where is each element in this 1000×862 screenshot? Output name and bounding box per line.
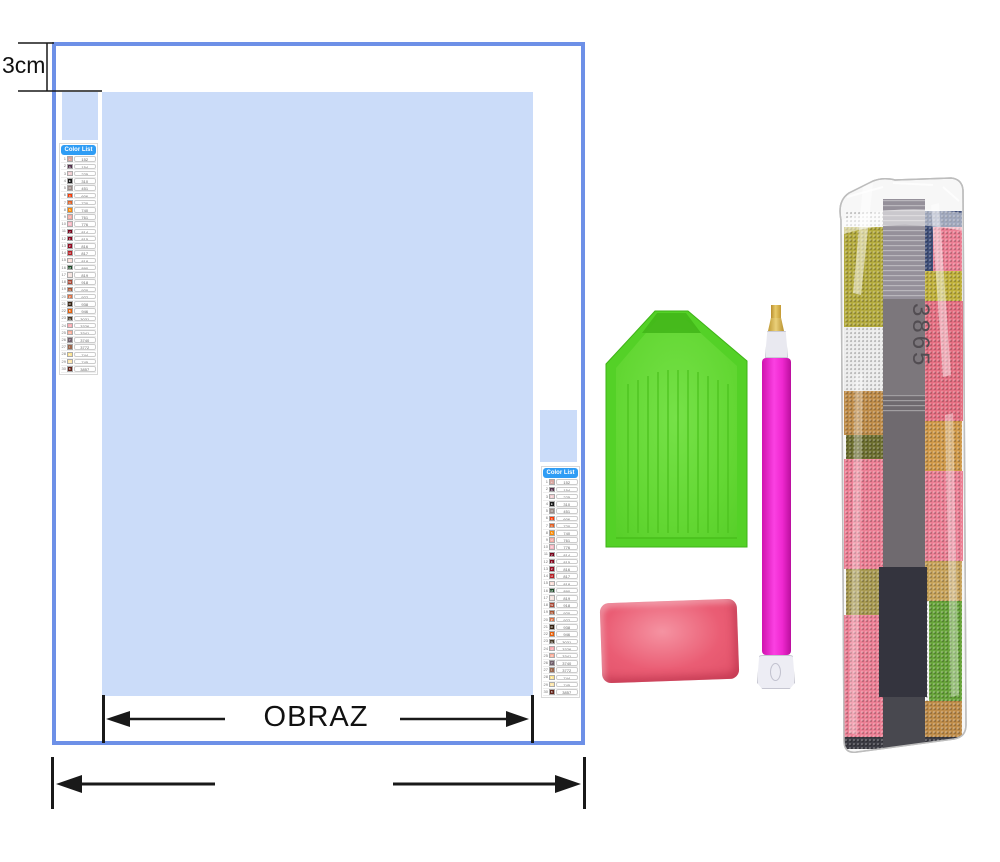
color-swatch: G	[67, 316, 73, 322]
color-list-row: 19N920	[61, 286, 96, 293]
color-swatch: P	[549, 617, 555, 623]
color-list-row: 13Z816	[543, 566, 578, 573]
color-swatch: F	[549, 559, 555, 565]
color-swatch: Y	[67, 337, 73, 343]
color-swatch: F	[67, 236, 73, 242]
color-swatch: 8	[67, 366, 73, 372]
color-swatch: V	[549, 552, 555, 558]
color-list-row: 22B946	[543, 631, 578, 638]
color-swatch: T	[67, 171, 73, 177]
color-swatch: 5	[67, 352, 73, 358]
color-swatch: L	[67, 272, 73, 278]
color-list-strip-left: Color List 1+1522A1543T2254E3105O4516X60…	[59, 143, 98, 375]
picture-width-label: OBRAZ	[255, 701, 377, 734]
color-list-row: 16M890	[61, 265, 96, 272]
color-list-row: 23G3031	[543, 638, 578, 645]
color-swatch: Z	[67, 243, 73, 249]
color-list-row: 3T225	[543, 493, 578, 500]
color-swatch: H	[67, 250, 73, 256]
color-swatch: X	[549, 516, 555, 522]
color-swatch: E	[67, 178, 73, 184]
color-list-row: 7C720	[61, 199, 96, 206]
color-swatch: +	[67, 156, 73, 162]
color-list-row: 5O451	[543, 508, 578, 515]
color-list-row: 23G3031	[61, 315, 96, 322]
color-list-row: 25Q3341	[543, 653, 578, 660]
color-swatch: D	[549, 544, 555, 550]
color-list-row: 9U761	[61, 214, 96, 221]
diamond-tray	[604, 306, 750, 552]
color-list-row: 10D776	[61, 221, 96, 228]
color-list-row: 15K818	[543, 580, 578, 587]
color-swatch: E	[549, 501, 555, 507]
color-list-row: 6X606	[543, 515, 578, 522]
arrow-right-icon	[555, 775, 581, 793]
color-list-row: 13Z816	[61, 243, 96, 250]
color-swatch: T	[549, 494, 555, 500]
color-list-row: 19N920	[543, 609, 578, 616]
color-swatch: B	[549, 631, 555, 637]
color-swatch: 3	[67, 359, 73, 365]
color-swatch: U	[549, 537, 555, 543]
color-list-row: 12F815	[61, 236, 96, 243]
color-list-row: 12F815	[543, 559, 578, 566]
color-list-row: 1+152	[543, 479, 578, 486]
color-swatch: 8	[549, 689, 555, 695]
color-swatch: H	[549, 573, 555, 579]
color-list-row: 8S740	[543, 530, 578, 537]
color-swatch: C	[549, 523, 555, 529]
pen-cap-loop	[770, 663, 781, 681]
color-list-row: 21R938	[61, 301, 96, 308]
color-swatch: R	[549, 624, 555, 630]
bead-bag: 3865	[833, 175, 973, 760]
color-list-rows: 1+1522A1543T2254E3105O4516X6067C7208S740…	[543, 479, 578, 696]
color-swatch: M	[549, 588, 555, 594]
color-swatch: K	[549, 581, 555, 587]
bag-dark-pack	[879, 567, 927, 697]
color-swatch: C	[67, 200, 73, 206]
color-swatch: N	[549, 610, 555, 616]
color-swatch: S	[549, 530, 555, 536]
color-list-row: 10D776	[543, 544, 578, 551]
color-swatch: M	[67, 265, 73, 271]
color-list-row: 293745	[543, 682, 578, 689]
color-swatch: Y	[549, 660, 555, 666]
color-list-rows: 1+1522A1543T2254E3105O4516X6067C7208S740…	[61, 156, 96, 373]
color-swatch: S	[67, 207, 73, 213]
color-list-strip-right: Color List 1+1522A1543T2254E3105O4516X60…	[541, 466, 580, 698]
color-swatch: Q	[549, 653, 555, 659]
color-list-row: 24J3326	[543, 645, 578, 652]
color-list-row: 22B946	[61, 308, 96, 315]
color-list-row: 11V814	[61, 228, 96, 235]
color-list-row: 18W918	[61, 279, 96, 286]
color-swatch: Q	[67, 330, 73, 336]
wax-block	[600, 599, 740, 684]
color-list-row: 26Y3740	[543, 660, 578, 667]
color-list-row: 285744	[543, 674, 578, 681]
bag-pack-number: 3865	[907, 303, 934, 368]
print-patch-right	[540, 410, 577, 462]
color-swatch: K	[67, 258, 73, 264]
color-swatch: X	[67, 193, 73, 199]
color-swatch: V	[67, 229, 73, 235]
top-margin-label: 3cm	[2, 52, 46, 79]
color-list-row: 15K818	[61, 257, 96, 264]
color-list-header: Color List	[61, 145, 96, 155]
color-swatch: W	[67, 279, 73, 285]
print-patch-left	[62, 92, 98, 140]
color-list-row: 8S740	[61, 207, 96, 214]
color-list-row: 2A154	[543, 486, 578, 493]
color-list-row: 4E310	[61, 178, 96, 185]
color-swatch: B	[67, 308, 73, 314]
color-list-row: 25Q3341	[61, 330, 96, 337]
color-swatch: O	[67, 185, 73, 191]
color-swatch: N	[67, 287, 73, 293]
color-list-row: 21R938	[543, 624, 578, 631]
color-list-row: 5O451	[61, 185, 96, 192]
color-list-row: 3T225	[61, 170, 96, 177]
color-swatch: I	[67, 344, 73, 350]
pen-tip-base	[768, 318, 784, 331]
color-swatch: A	[67, 164, 73, 170]
color-list-row: 3083857	[61, 366, 96, 373]
tray-floor	[616, 320, 737, 538]
pen-metal-tip-icon	[771, 305, 781, 318]
color-list-row: 16M890	[543, 588, 578, 595]
color-list-row: 17L819	[543, 595, 578, 602]
color-swatch: 3	[549, 682, 555, 688]
color-list-header: Color List	[543, 468, 578, 478]
color-swatch: R	[67, 301, 73, 307]
color-list-row: 27I3772	[61, 344, 96, 351]
diamond-pen-body	[762, 358, 791, 655]
color-list-row: 285744	[61, 351, 96, 358]
color-swatch: I	[549, 667, 555, 673]
canvas-width-dimension	[51, 757, 586, 809]
color-list-row: 27I3772	[543, 667, 578, 674]
arrow-left-icon	[56, 775, 82, 793]
color-swatch: +	[549, 479, 555, 485]
printed-design-area	[102, 92, 533, 696]
color-swatch: U	[67, 214, 73, 220]
color-swatch: O	[549, 508, 555, 514]
color-list-row: 6X606	[61, 192, 96, 199]
color-list-row: 293745	[61, 359, 96, 366]
color-swatch: D	[67, 221, 73, 227]
color-list-row: 20P922	[61, 293, 96, 300]
color-swatch: G	[549, 639, 555, 645]
color-swatch: J	[67, 323, 73, 329]
color-list-row: 9U761	[543, 537, 578, 544]
color-list-row: 1+152	[61, 156, 96, 163]
color-swatch: P	[67, 294, 73, 300]
color-list-row: 7C720	[543, 522, 578, 529]
bag-contents: 3865	[841, 183, 963, 749]
color-list-row: 24J3326	[61, 322, 96, 329]
color-swatch: Z	[549, 566, 555, 572]
color-list-row: 3083857	[543, 689, 578, 696]
color-swatch: W	[549, 602, 555, 608]
color-list-row: 11V814	[543, 551, 578, 558]
pen-clear-collar	[765, 331, 788, 358]
color-list-row: 18W918	[543, 602, 578, 609]
color-list-row: 14H817	[61, 250, 96, 257]
color-list-row: 20P922	[543, 616, 578, 623]
color-list-row: 17L819	[61, 272, 96, 279]
color-swatch: A	[549, 487, 555, 493]
product-image: Color List 1+1522A1543T2254E3105O4516X60…	[0, 0, 1000, 862]
color-list-row: 2A154	[61, 163, 96, 170]
color-list-row: 26Y3740	[61, 337, 96, 344]
color-swatch: L	[549, 595, 555, 601]
color-list-row: 4E310	[543, 501, 578, 508]
color-swatch: 5	[549, 675, 555, 681]
color-swatch: J	[549, 646, 555, 652]
color-list-row: 14H817	[543, 573, 578, 580]
